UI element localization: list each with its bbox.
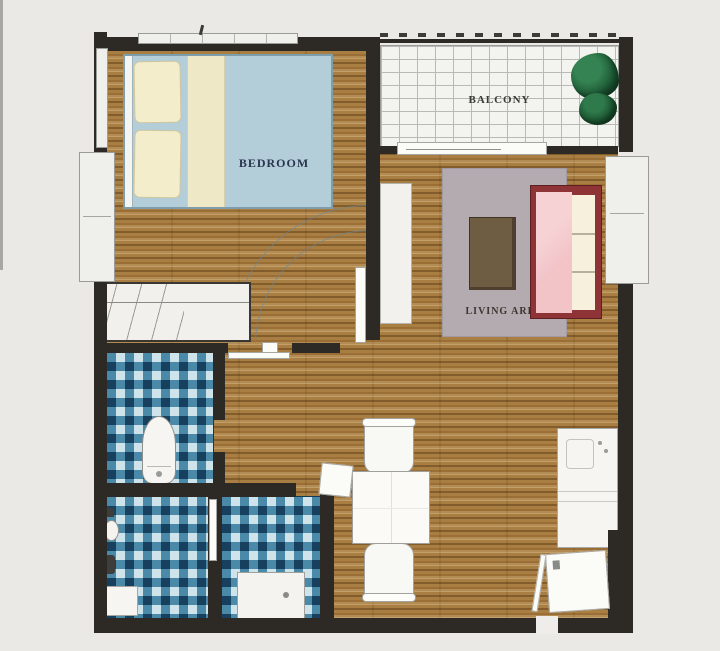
chair-back [362, 593, 416, 602]
bedroom-door [355, 267, 366, 343]
shower-tray-small [106, 586, 138, 616]
cushion-seam [572, 271, 595, 273]
toilet-tank-line [147, 466, 171, 467]
balcony-sliding-door [397, 142, 547, 155]
toilet [142, 416, 176, 484]
bedroom-area: BEDROOM [104, 51, 366, 343]
window-mullion [610, 213, 644, 214]
bedroom-label: BEDROOM [204, 156, 344, 171]
toilet-flush-button [156, 471, 162, 477]
window-top [138, 33, 298, 44]
wall-bath1-east-upper [213, 353, 225, 420]
blanket [187, 56, 225, 207]
wall-right [618, 283, 633, 633]
wall-bedroom-south [94, 343, 228, 353]
table-seam [353, 508, 429, 509]
window-left-upper [96, 48, 108, 148]
entry-threshold [536, 616, 558, 634]
dining-table [352, 471, 430, 544]
sofa-seat-cushion [536, 192, 572, 313]
floor-plan: BALCONY BEDROOM LIVING AREA [0, 0, 720, 651]
photo-edge [0, 0, 3, 270]
balcony-railing-ticks [380, 33, 619, 37]
bed-headboard [125, 56, 133, 207]
shower-tray [237, 572, 305, 620]
wall-bath-band [94, 483, 296, 497]
window-mullion [83, 216, 111, 217]
faucet-dot [598, 441, 602, 445]
counter-divider [558, 501, 617, 502]
faucet-dot [604, 449, 608, 453]
pillow [133, 61, 181, 124]
door-stop [262, 342, 278, 353]
sofa [530, 185, 602, 319]
closet [104, 282, 251, 342]
wall-bedroom-south-stub [292, 343, 340, 353]
sofa-back-cushion [572, 195, 595, 310]
bed [123, 54, 333, 209]
chair-back [362, 418, 416, 427]
dining-chair-top [364, 419, 414, 474]
door-handle [552, 560, 560, 569]
cushion-seam [572, 233, 595, 235]
sliding-door-track [406, 149, 501, 150]
kitchen-sink [566, 439, 594, 469]
balcony-railing [378, 39, 619, 43]
counter-divider [558, 491, 617, 492]
dining-chair-bottom [364, 543, 414, 601]
tv-cabinet [380, 183, 412, 324]
wall-bath1-east-lower [213, 452, 225, 483]
pillow [133, 130, 181, 199]
shower-drain [283, 592, 289, 598]
wall-entry-nook [608, 530, 620, 618]
wall-bath3-east [320, 483, 334, 618]
bathroom2-door [209, 499, 217, 561]
coffee-table [469, 217, 516, 290]
wall-bedroom-living [366, 45, 380, 340]
bathroom3-door [318, 462, 353, 497]
entry-door [545, 550, 610, 613]
window-right [605, 156, 649, 284]
window-left [79, 152, 115, 282]
wall-balcony-pillar [619, 37, 633, 152]
bathroom1-door [228, 352, 290, 359]
